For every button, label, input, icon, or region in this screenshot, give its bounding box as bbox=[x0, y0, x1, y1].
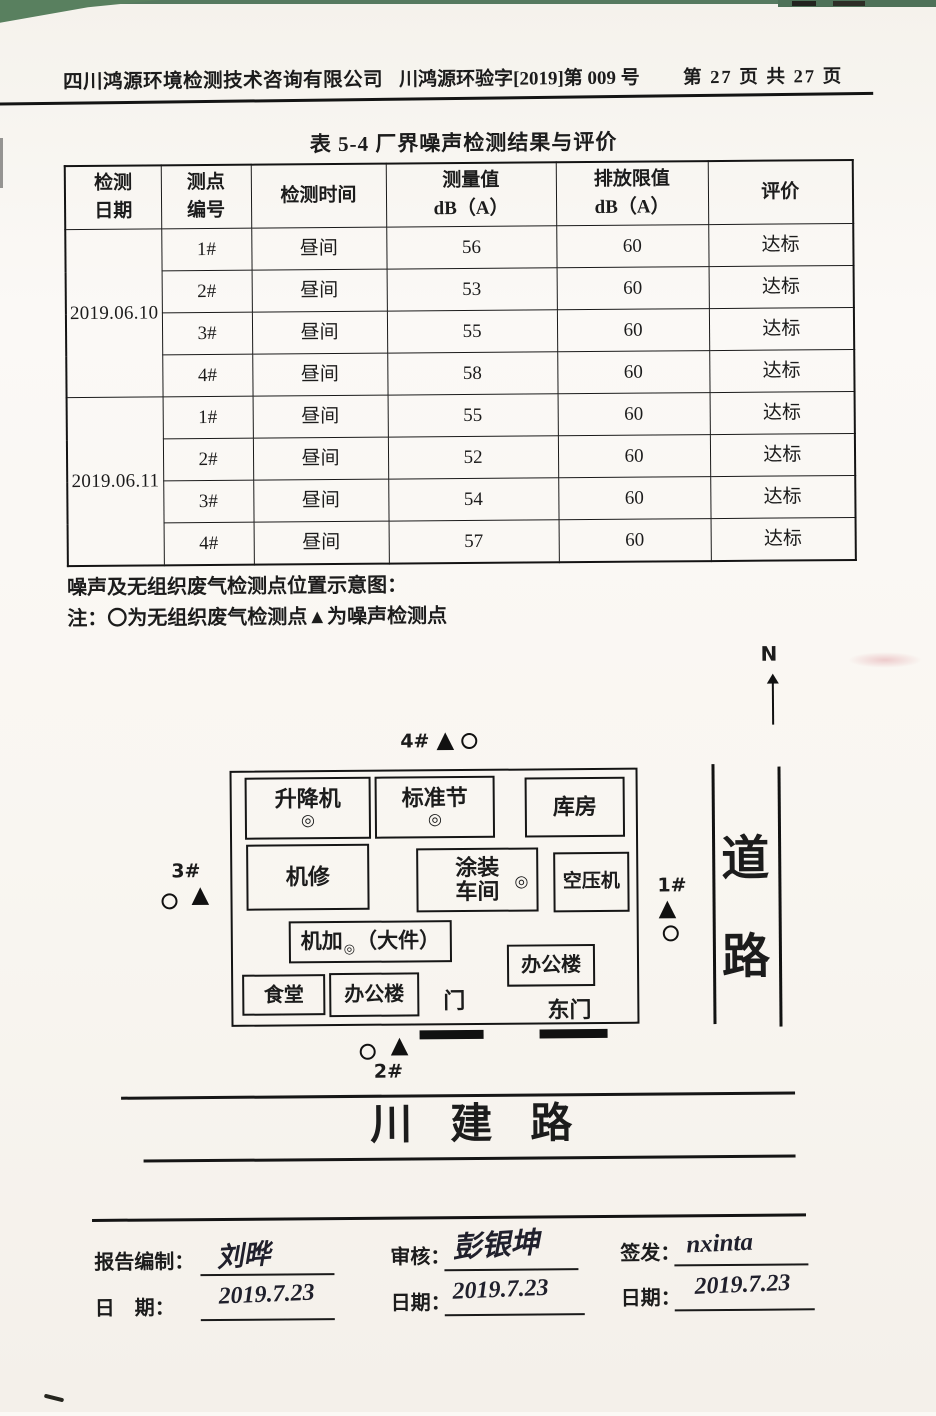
date-underline bbox=[201, 1318, 335, 1321]
building-office-south-label: 办公楼 bbox=[344, 984, 404, 1006]
limit-cell: 60 bbox=[558, 435, 710, 478]
result-cell: 达标 bbox=[709, 307, 854, 350]
building-office-east-label: 办公楼 bbox=[521, 954, 581, 976]
time-cell: 昼间 bbox=[252, 311, 387, 354]
value-cell: 58 bbox=[387, 352, 557, 395]
table-row: 2019.06.111#昼间5560达标 bbox=[67, 391, 855, 439]
table-row: 3#昼间5560达标 bbox=[66, 307, 854, 355]
monitor-point-2-label: 2# bbox=[374, 1061, 403, 1083]
time-cell: 昼间 bbox=[251, 227, 386, 270]
result-cell: 达标 bbox=[711, 517, 856, 561]
col-header-date: 检测 日期 bbox=[65, 165, 161, 229]
time-cell: 昼间 bbox=[253, 479, 388, 522]
reviewed-by-signature: 彭银坤 bbox=[451, 1219, 540, 1266]
point-cell: 3# bbox=[163, 480, 253, 523]
equipment-marker-icon: ◎ bbox=[428, 812, 442, 828]
col-header-value-line1: 测量值 bbox=[386, 167, 555, 196]
building-machine-repair-label: 机修 bbox=[286, 865, 330, 890]
table-header-row: 检测 日期 测点 编号 检测时间 测量值 dB（A） 排放限值 dB（A） 评价 bbox=[65, 160, 853, 230]
scan-artifact bbox=[0, 138, 3, 188]
col-header-limit-line1: 排放限值 bbox=[556, 166, 707, 195]
street-lower-edge bbox=[144, 1154, 796, 1162]
building-air-compressor: 空压机 bbox=[553, 852, 629, 913]
gate-label: 门 bbox=[443, 983, 465, 1015]
point-cell: 1# bbox=[161, 228, 251, 271]
building-machining-label: 机加 bbox=[301, 930, 343, 953]
building-canteen-label: 食堂 bbox=[264, 984, 304, 1006]
value-cell: 56 bbox=[386, 226, 556, 269]
limit-cell: 60 bbox=[558, 393, 710, 436]
building-air-compressor-label: 空压机 bbox=[563, 871, 620, 892]
col-header-limit-line2: dB（A） bbox=[556, 193, 707, 222]
value-cell: 52 bbox=[388, 436, 558, 479]
diagram-caption: 噪声及无组织废气检测点位置示意图： bbox=[67, 568, 407, 600]
time-cell: 昼间 bbox=[252, 269, 387, 312]
prepared-date-label: 日 期： bbox=[95, 1291, 175, 1321]
col-header-limit: 排放限值 dB（A） bbox=[556, 161, 708, 226]
equipment-marker-icon: ◎ bbox=[344, 941, 355, 957]
issue-date-value: 2019.7.23 bbox=[694, 1270, 791, 1301]
point-cell: 4# bbox=[162, 354, 252, 397]
road-label-char1: 道 bbox=[721, 836, 769, 884]
noise-point-2-icon: ▲ bbox=[391, 1034, 409, 1057]
document-number: 川鸿源环验字[2019]第 009 号 bbox=[399, 62, 683, 91]
limit-cell: 60 bbox=[559, 519, 711, 563]
building-machine-repair: 机修 bbox=[246, 844, 370, 911]
header-rule bbox=[0, 92, 873, 106]
signature-underline bbox=[200, 1273, 334, 1276]
result-cell: 达标 bbox=[710, 433, 855, 476]
building-lift-label: 升降机 bbox=[275, 787, 341, 812]
gas-point-2-icon bbox=[360, 1044, 376, 1060]
limit-cell: 60 bbox=[558, 477, 710, 520]
scan-artifact bbox=[848, 652, 922, 668]
review-date-value: 2019.7.23 bbox=[452, 1275, 549, 1306]
building-canteen: 食堂 bbox=[242, 974, 325, 1016]
table-row: 4#昼间5860达标 bbox=[66, 349, 854, 397]
east-gate-label: 东门 bbox=[547, 992, 591, 1024]
date-cell: 2019.06.11 bbox=[67, 397, 164, 566]
company-name: 四川鸿源环境检测技术咨询有限公司 bbox=[63, 63, 399, 95]
page-number: 第 27 页 共 27 页 bbox=[683, 62, 843, 89]
east-gate-bar bbox=[540, 1029, 608, 1039]
signoff-rule bbox=[92, 1213, 806, 1221]
gate-bar bbox=[420, 1030, 484, 1040]
scan-artifact bbox=[833, 1, 865, 6]
monitor-point-4-group: 4# ▲ bbox=[400, 729, 477, 753]
monitor-point-1-label: 1# bbox=[657, 874, 686, 896]
reviewed-by-label: 审核： bbox=[390, 1240, 450, 1269]
value-cell: 55 bbox=[388, 394, 558, 437]
issued-by-label: 签发： bbox=[620, 1236, 680, 1265]
building-standard-section: 标准节 ◎ bbox=[375, 776, 495, 839]
limit-cell: 60 bbox=[557, 267, 709, 310]
table-row: 2019.06.101#昼间5660达标 bbox=[65, 223, 853, 271]
table-row: 3#昼间5460达标 bbox=[67, 475, 855, 523]
diagram-legend: 注：〇为无组织废气检测点▲为噪声检测点 bbox=[67, 599, 447, 631]
building-office-east: 办公楼 bbox=[507, 944, 595, 987]
col-header-point-line1: 测点 bbox=[161, 169, 250, 197]
building-standard-section-label: 标准节 bbox=[402, 786, 468, 811]
date-underline bbox=[675, 1308, 815, 1311]
noise-results-table: 检测 日期 测点 编号 检测时间 测量值 dB（A） 排放限值 dB（A） 评价 bbox=[64, 159, 857, 567]
building-warehouse: 库房 bbox=[525, 777, 625, 838]
table-row: 4#昼间5760达标 bbox=[68, 517, 856, 566]
equipment-marker-icon: ◎ bbox=[514, 872, 528, 892]
result-cell: 达标 bbox=[709, 349, 854, 392]
north-arrow-shaft bbox=[772, 683, 774, 725]
time-cell: 昼间 bbox=[254, 521, 389, 565]
col-header-value-line2: dB（A） bbox=[386, 194, 555, 223]
signature-underline bbox=[444, 1268, 578, 1271]
col-header-time: 检测时间 bbox=[251, 164, 386, 229]
col-header-point-line2: 编号 bbox=[161, 197, 250, 225]
table-row: 2#昼间5360达标 bbox=[66, 265, 854, 313]
result-cell: 达标 bbox=[709, 265, 854, 308]
col-header-point: 测点 编号 bbox=[161, 165, 251, 229]
limit-cell: 60 bbox=[556, 225, 708, 268]
result-cell: 达标 bbox=[710, 391, 855, 434]
value-cell: 53 bbox=[387, 268, 557, 311]
col-header-value: 测量值 dB（A） bbox=[386, 162, 556, 227]
street-name: 川建路 bbox=[3, 1096, 936, 1154]
building-lift: 升降机 ◎ bbox=[245, 777, 371, 840]
monitor-point-4-label: 4# bbox=[400, 730, 429, 752]
road-left-edge bbox=[711, 764, 716, 1024]
noise-point-1-icon: ▲ bbox=[659, 897, 677, 920]
building-machining-suffix: （大件） bbox=[356, 930, 440, 954]
point-cell: 2# bbox=[162, 270, 252, 313]
col-header-result: 评价 bbox=[708, 160, 853, 225]
gas-point-4-icon bbox=[461, 732, 477, 748]
gas-point-3-icon bbox=[161, 893, 177, 909]
time-cell: 昼间 bbox=[253, 437, 388, 480]
building-painting-label-line2: 车间 bbox=[455, 880, 499, 905]
prepared-by-label: 报告编制： bbox=[94, 1245, 194, 1275]
monitor-point-3-label: 3# bbox=[171, 860, 200, 882]
building-painting-label-line1: 涂装 bbox=[455, 856, 499, 881]
value-cell: 57 bbox=[389, 520, 559, 564]
compass-north-label: N bbox=[761, 642, 778, 666]
signature-underline bbox=[674, 1263, 808, 1266]
road-label-char2: 路 bbox=[722, 934, 770, 982]
prepared-by-signature: 刘晔 bbox=[215, 1232, 272, 1275]
noise-point-3-icon: ▲ bbox=[191, 884, 209, 907]
point-cell: 2# bbox=[163, 438, 253, 481]
point-cell: 4# bbox=[164, 522, 254, 565]
table-title: 表 5-4 厂界噪声检测结果与评价 bbox=[0, 123, 932, 160]
result-cell: 达标 bbox=[710, 475, 855, 518]
col-header-date-line1: 检测 bbox=[66, 170, 161, 198]
table-row: 2#昼间5260达标 bbox=[67, 433, 855, 481]
prepared-date-value: 2019.7.23 bbox=[218, 1280, 315, 1311]
date-cell: 2019.06.10 bbox=[65, 229, 162, 398]
point-cell: 1# bbox=[163, 396, 253, 439]
point-cell: 3# bbox=[162, 312, 252, 355]
scanned-page: 四川鸿源环境检测技术咨询有限公司 川鸿源环验字[2019]第 009 号 第 2… bbox=[0, 0, 936, 1416]
limit-cell: 60 bbox=[557, 351, 709, 394]
time-cell: 昼间 bbox=[252, 353, 387, 396]
issued-by-signature: nxinta bbox=[686, 1229, 754, 1260]
review-date-label: 日期： bbox=[391, 1286, 451, 1315]
building-painting-workshop: 涂装 车间 ◎ bbox=[416, 847, 538, 912]
page-header: 四川鸿源环境检测技术咨询有限公司 川鸿源环验字[2019]第 009 号 第 2… bbox=[63, 59, 863, 94]
col-header-date-line2: 日期 bbox=[66, 197, 161, 225]
value-cell: 55 bbox=[387, 310, 557, 353]
result-cell: 达标 bbox=[708, 223, 853, 266]
value-cell: 54 bbox=[388, 478, 558, 521]
building-machining: 机加 ◎ （大件） bbox=[289, 920, 452, 963]
noise-point-4-icon: ▲ bbox=[436, 729, 454, 752]
time-cell: 昼间 bbox=[253, 395, 388, 438]
building-office-south: 办公楼 bbox=[329, 972, 419, 1017]
equipment-marker-icon: ◎ bbox=[301, 813, 315, 829]
gas-point-1-icon bbox=[663, 925, 679, 941]
limit-cell: 60 bbox=[557, 309, 709, 352]
date-underline bbox=[445, 1313, 585, 1316]
noise-table-body: 2019.06.101#昼间5660达标2#昼间5360达标3#昼间5560达标… bbox=[65, 223, 856, 566]
building-warehouse-label: 库房 bbox=[553, 795, 597, 820]
scan-artifact bbox=[792, 1, 816, 6]
road-right-edge bbox=[777, 767, 782, 1027]
issue-date-label: 日期： bbox=[621, 1281, 681, 1310]
